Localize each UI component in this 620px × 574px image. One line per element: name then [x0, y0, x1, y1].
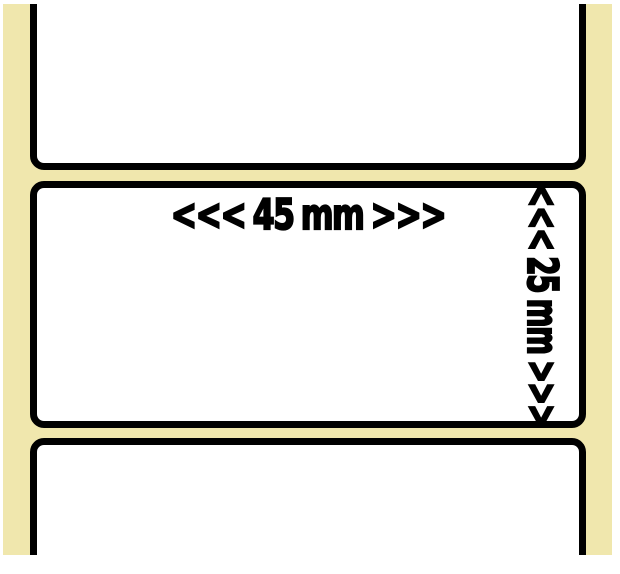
liner-backing-strip: <<< 45 mm >>> <<< 25 mm >>> [3, 4, 612, 555]
height-dimension-annotation: <<< 25 mm >>> [521, 184, 563, 426]
width-dimension-annotation: <<< 45 mm >>> [105, 194, 512, 236]
label-bottom-partial [30, 438, 586, 555]
label-top-partial [30, 4, 586, 170]
label-middle: <<< 45 mm >>> <<< 25 mm >>> [30, 181, 586, 428]
